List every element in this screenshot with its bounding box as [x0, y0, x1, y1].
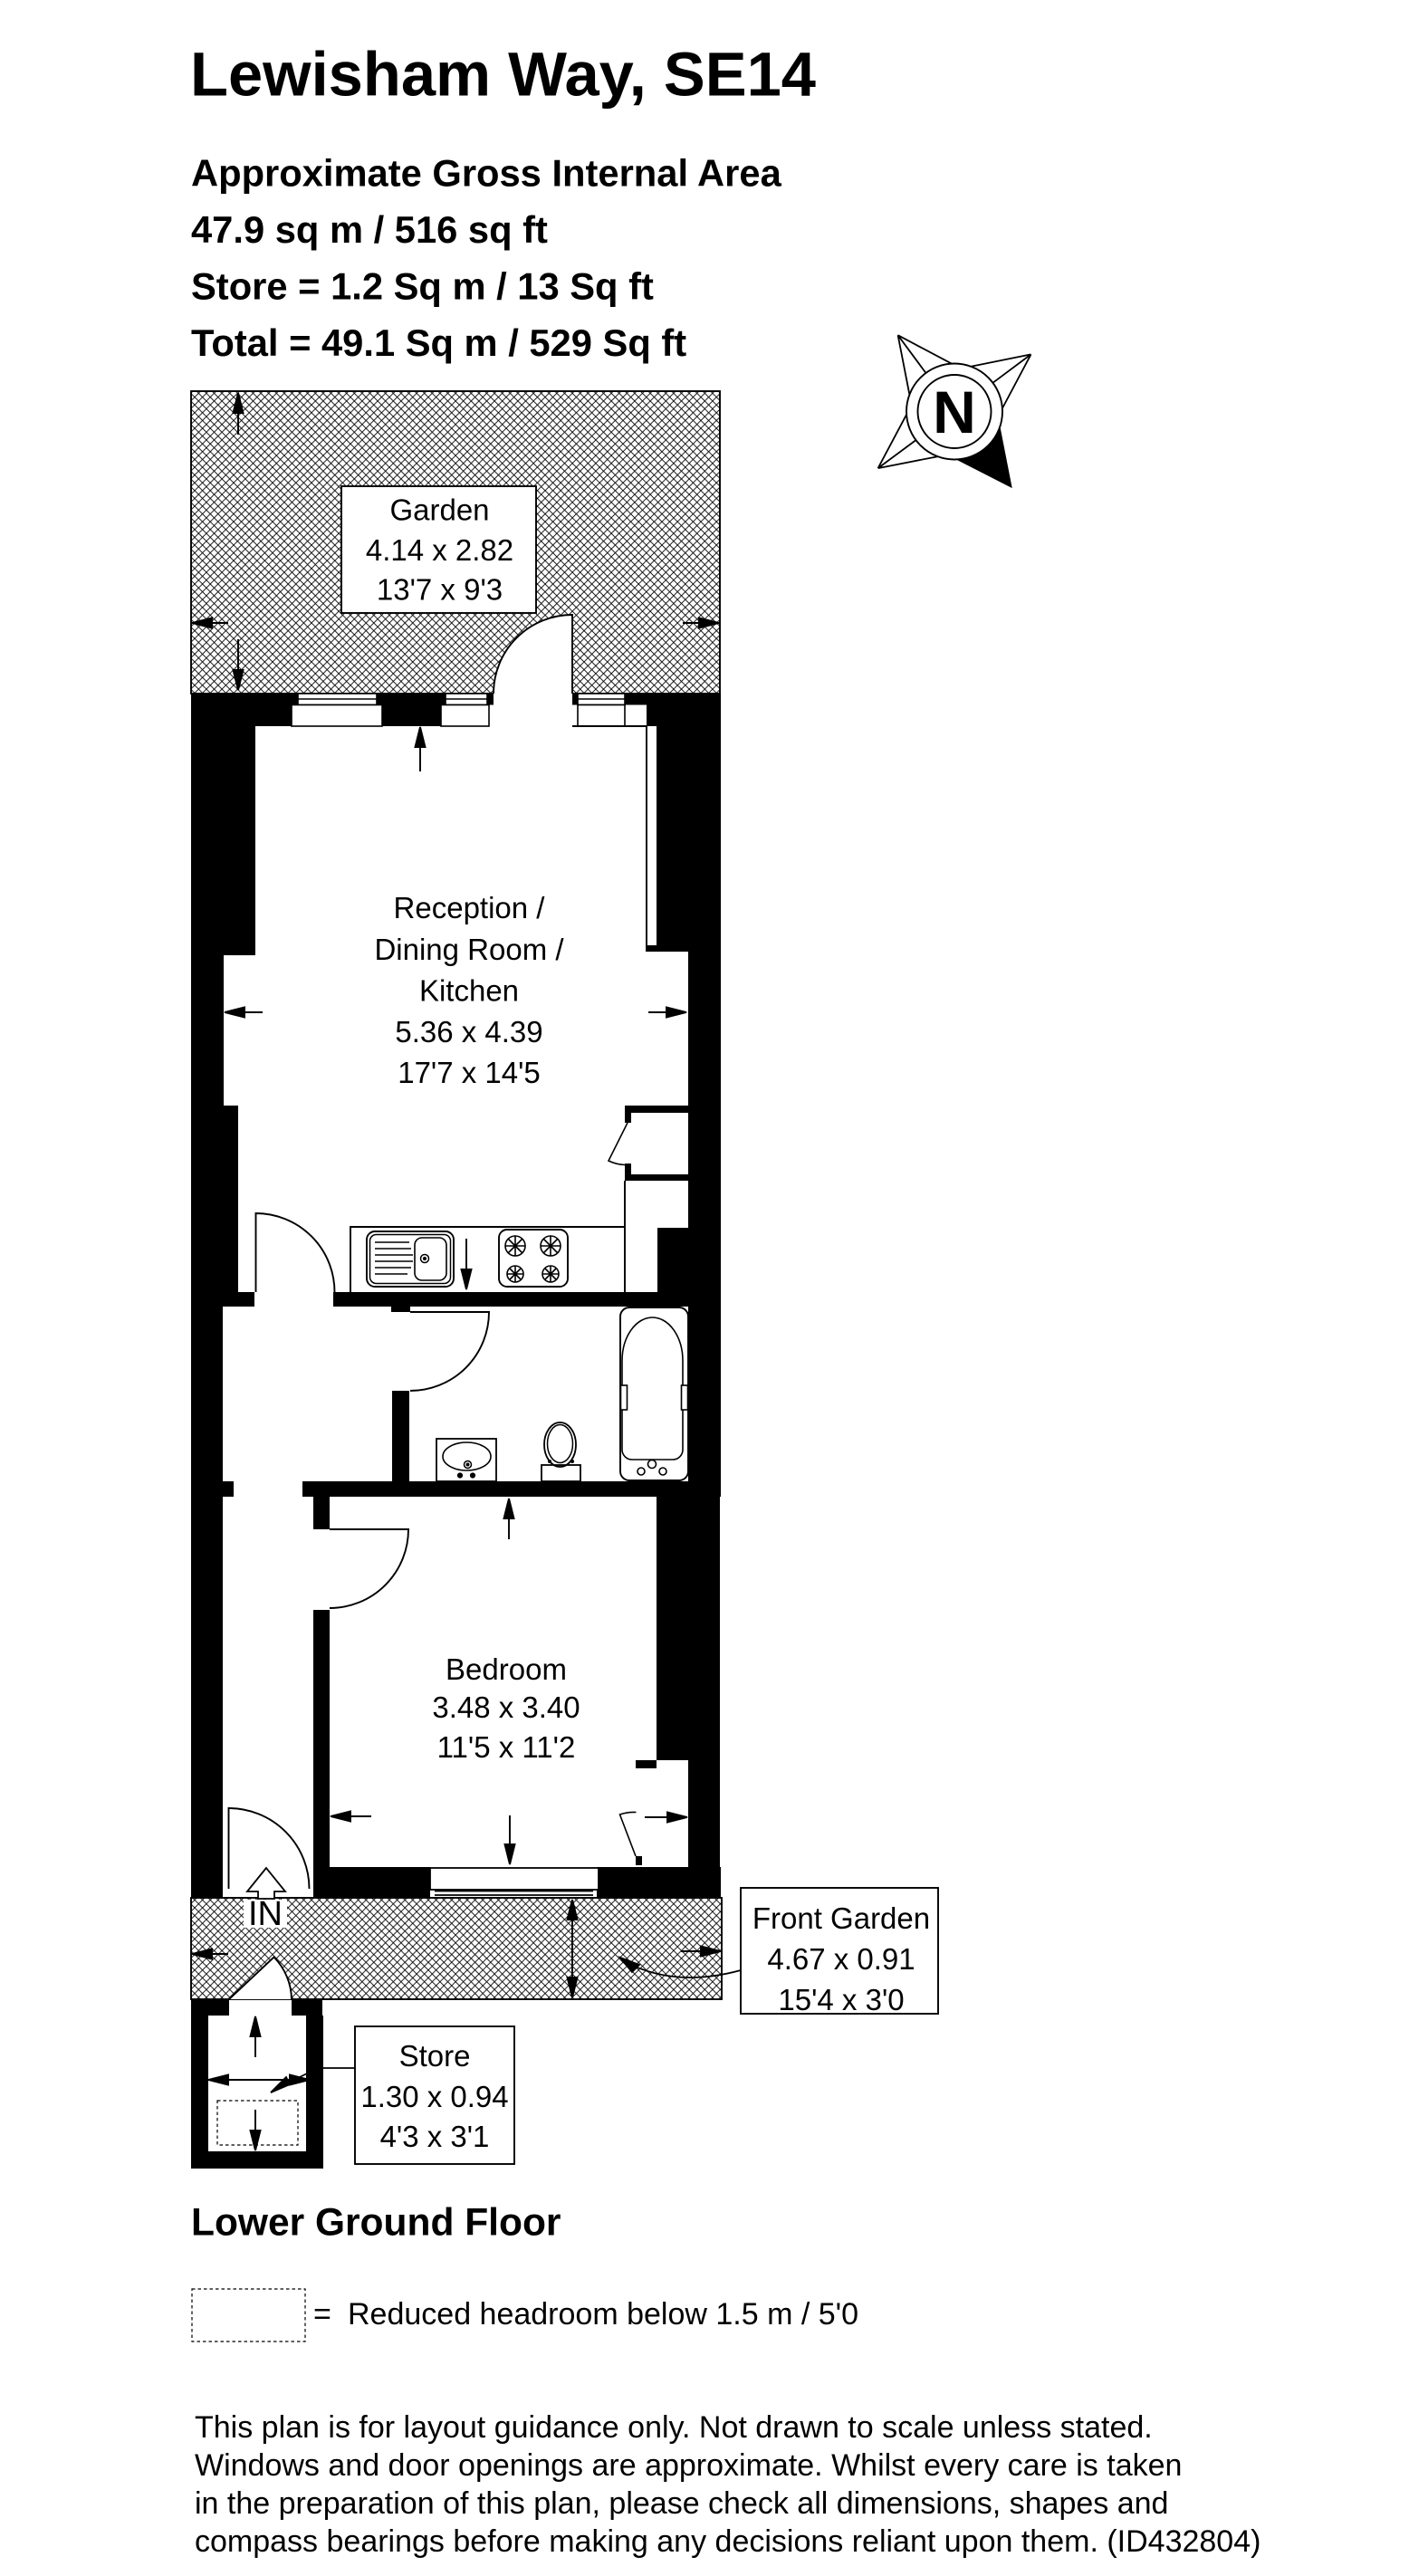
svg-text:15'4 x 3'0: 15'4 x 3'0	[778, 1983, 904, 2016]
svg-text:=: =	[313, 2297, 331, 2332]
svg-text:Store: Store	[399, 2039, 471, 2073]
svg-text:Lower Ground Floor: Lower Ground Floor	[191, 2202, 561, 2245]
svg-text:Garden: Garden	[389, 493, 489, 527]
svg-text:4.14 x 2.82: 4.14 x 2.82	[366, 533, 513, 567]
svg-text:Approximate Gross Internal Are: Approximate Gross Internal Area	[191, 152, 782, 195]
svg-text:Windows and door openings are: Windows and door openings are approximat…	[195, 2448, 1182, 2483]
svg-text:5.36 x 4.39: 5.36 x 4.39	[395, 1015, 542, 1049]
svg-text:Kitchen: Kitchen	[419, 974, 519, 1008]
svg-text:4.67 x 0.91: 4.67 x 0.91	[767, 1942, 915, 1976]
svg-text:3.48 x 3.40: 3.48 x 3.40	[432, 1690, 580, 1724]
svg-text:13'7 x 9'3: 13'7 x 9'3	[377, 573, 503, 607]
svg-text:Bedroom: Bedroom	[446, 1652, 567, 1686]
svg-text:1.30 x 0.94: 1.30 x 0.94	[360, 2080, 508, 2113]
svg-text:Store = 1.2 Sq m / 13 Sq ft: Store = 1.2 Sq m / 13 Sq ft	[191, 265, 654, 308]
svg-text:This plan is for layout guidan: This plan is for layout guidance only. N…	[195, 2410, 1153, 2445]
svg-text:IN: IN	[248, 1895, 283, 1933]
svg-text:17'7 x 14'5: 17'7 x 14'5	[398, 1056, 541, 1089]
svg-text:in the preparation of this pla: in the preparation of this plan, please …	[195, 2486, 1168, 2521]
svg-text:Dining Room /: Dining Room /	[374, 933, 564, 966]
svg-text:Lewisham Way, SE14: Lewisham Way, SE14	[190, 40, 816, 110]
svg-text:47.9 sq m / 516 sq ft: 47.9 sq m / 516 sq ft	[191, 208, 548, 251]
svg-text:11'5 x 11'2: 11'5 x 11'2	[437, 1730, 576, 1764]
svg-text:Total = 49.1 Sq m / 529 Sq ft: Total = 49.1 Sq m / 529 Sq ft	[191, 321, 686, 364]
svg-text:compass bearings before making: compass bearings before making any decis…	[195, 2524, 1260, 2559]
svg-text:Front Garden: Front Garden	[752, 1901, 930, 1935]
svg-text:Reception /: Reception /	[394, 891, 546, 924]
svg-text:4'3 x 3'1: 4'3 x 3'1	[380, 2120, 490, 2153]
svg-text:N: N	[933, 378, 976, 445]
svg-text:Reduced headroom below 1.5 m /: Reduced headroom below 1.5 m / 5'0	[348, 2297, 858, 2332]
